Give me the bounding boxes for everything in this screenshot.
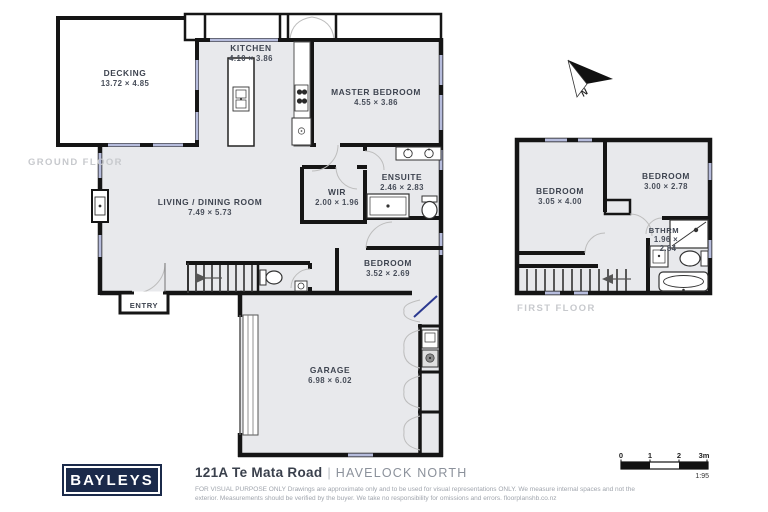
svg-text:13.72 × 4.85: 13.72 × 4.85 xyxy=(101,79,150,88)
svg-text:4.10 × 3.86: 4.10 × 3.86 xyxy=(229,54,273,63)
svg-text:DECKING: DECKING xyxy=(104,68,147,78)
floorplan-page: DECKING 13.72 × 4.85 KITCHEN 4.10 × 3.86… xyxy=(0,0,768,512)
garage-door-panel xyxy=(243,315,258,435)
pergola-strip xyxy=(185,14,441,40)
ground-floor-caption: GROUND FLOOR xyxy=(28,157,123,168)
ensuite-toilet xyxy=(422,196,437,219)
svg-text:KITCHEN: KITCHEN xyxy=(230,43,271,53)
svg-text:0: 0 xyxy=(619,451,623,460)
svg-text:4.55 × 3.86: 4.55 × 3.86 xyxy=(354,98,398,107)
svg-text:6.98 × 6.02: 6.98 × 6.02 xyxy=(308,376,352,385)
suburb-name: HAVELOCK NORTH xyxy=(336,466,468,480)
svg-text:BTHRM: BTHRM xyxy=(649,226,679,235)
svg-text:LIVING / DINING ROOM: LIVING / DINING ROOM xyxy=(158,197,263,207)
svg-text:WIR: WIR xyxy=(328,187,346,197)
first-floor-plan: BEDROOM 3.05 × 4.00 BEDROOM 3.00 × 2.78 … xyxy=(517,140,710,314)
svg-text:2: 2 xyxy=(677,451,681,460)
disclaimer-line-1: FOR VISUAL PURPOSE ONLY Drawings are app… xyxy=(195,486,755,495)
svg-text:1.96 ×: 1.96 × xyxy=(654,235,678,244)
svg-text:1:95: 1:95 xyxy=(695,473,709,480)
svg-text:3.05 × 4.00: 3.05 × 4.00 xyxy=(538,197,582,206)
laundry-appliances xyxy=(422,330,438,367)
kitchen-counter xyxy=(292,42,311,146)
svg-text:GARAGE: GARAGE xyxy=(310,365,350,375)
bayleys-logo: BAYLEYS xyxy=(62,464,162,496)
disclaimer-text: FOR VISUAL PURPOSE ONLY Drawings are app… xyxy=(195,486,755,503)
svg-text:3.52 × 2.69: 3.52 × 2.69 xyxy=(366,269,410,278)
svg-text:7.49 × 5.73: 7.49 × 5.73 xyxy=(188,208,232,217)
bayleys-logo-text: BAYLEYS xyxy=(70,472,153,489)
svg-text:2.46 × 2.83: 2.46 × 2.83 xyxy=(380,183,424,192)
svg-text:1: 1 xyxy=(648,451,652,460)
ensuite-vanity xyxy=(396,147,441,160)
svg-text:ENSUITE: ENSUITE xyxy=(382,172,423,182)
svg-text:2.84: 2.84 xyxy=(660,244,677,253)
address-separator: | xyxy=(322,465,335,480)
ensuite-shower xyxy=(367,194,409,218)
street-address: 121A Te Mata Road xyxy=(195,465,322,480)
scale-bar: 0 1 2 3m 1:95 xyxy=(619,451,710,480)
fireplace xyxy=(92,190,108,222)
svg-text:BEDROOM: BEDROOM xyxy=(642,171,690,181)
svg-text:3.00 × 2.78: 3.00 × 2.78 xyxy=(644,182,688,191)
first-floor-caption: FIRST FLOOR xyxy=(517,303,596,314)
kitchen-island xyxy=(228,58,254,146)
svg-text:BEDROOM: BEDROOM xyxy=(536,186,584,196)
svg-text:ENTRY: ENTRY xyxy=(130,301,158,310)
disclaimer-line-2: exterior. Measurements should be verifie… xyxy=(195,495,755,504)
svg-text:MASTER BEDROOM: MASTER BEDROOM xyxy=(331,87,421,97)
north-arrow-icon: N xyxy=(568,60,613,99)
svg-text:2.00 × 1.96: 2.00 × 1.96 xyxy=(315,198,359,207)
floorplan-drawing: DECKING 13.72 × 4.85 KITCHEN 4.10 × 3.86… xyxy=(0,0,768,512)
property-address: 121A Te Mata Road|HAVELOCK NORTH xyxy=(195,464,467,482)
entry-label: ENTRY xyxy=(130,301,158,310)
svg-text:N: N xyxy=(579,86,591,98)
svg-text:3m: 3m xyxy=(699,451,710,460)
ground-floor-plan: DECKING 13.72 × 4.85 KITCHEN 4.10 × 3.86… xyxy=(28,14,443,457)
svg-text:BEDROOM: BEDROOM xyxy=(364,258,412,268)
